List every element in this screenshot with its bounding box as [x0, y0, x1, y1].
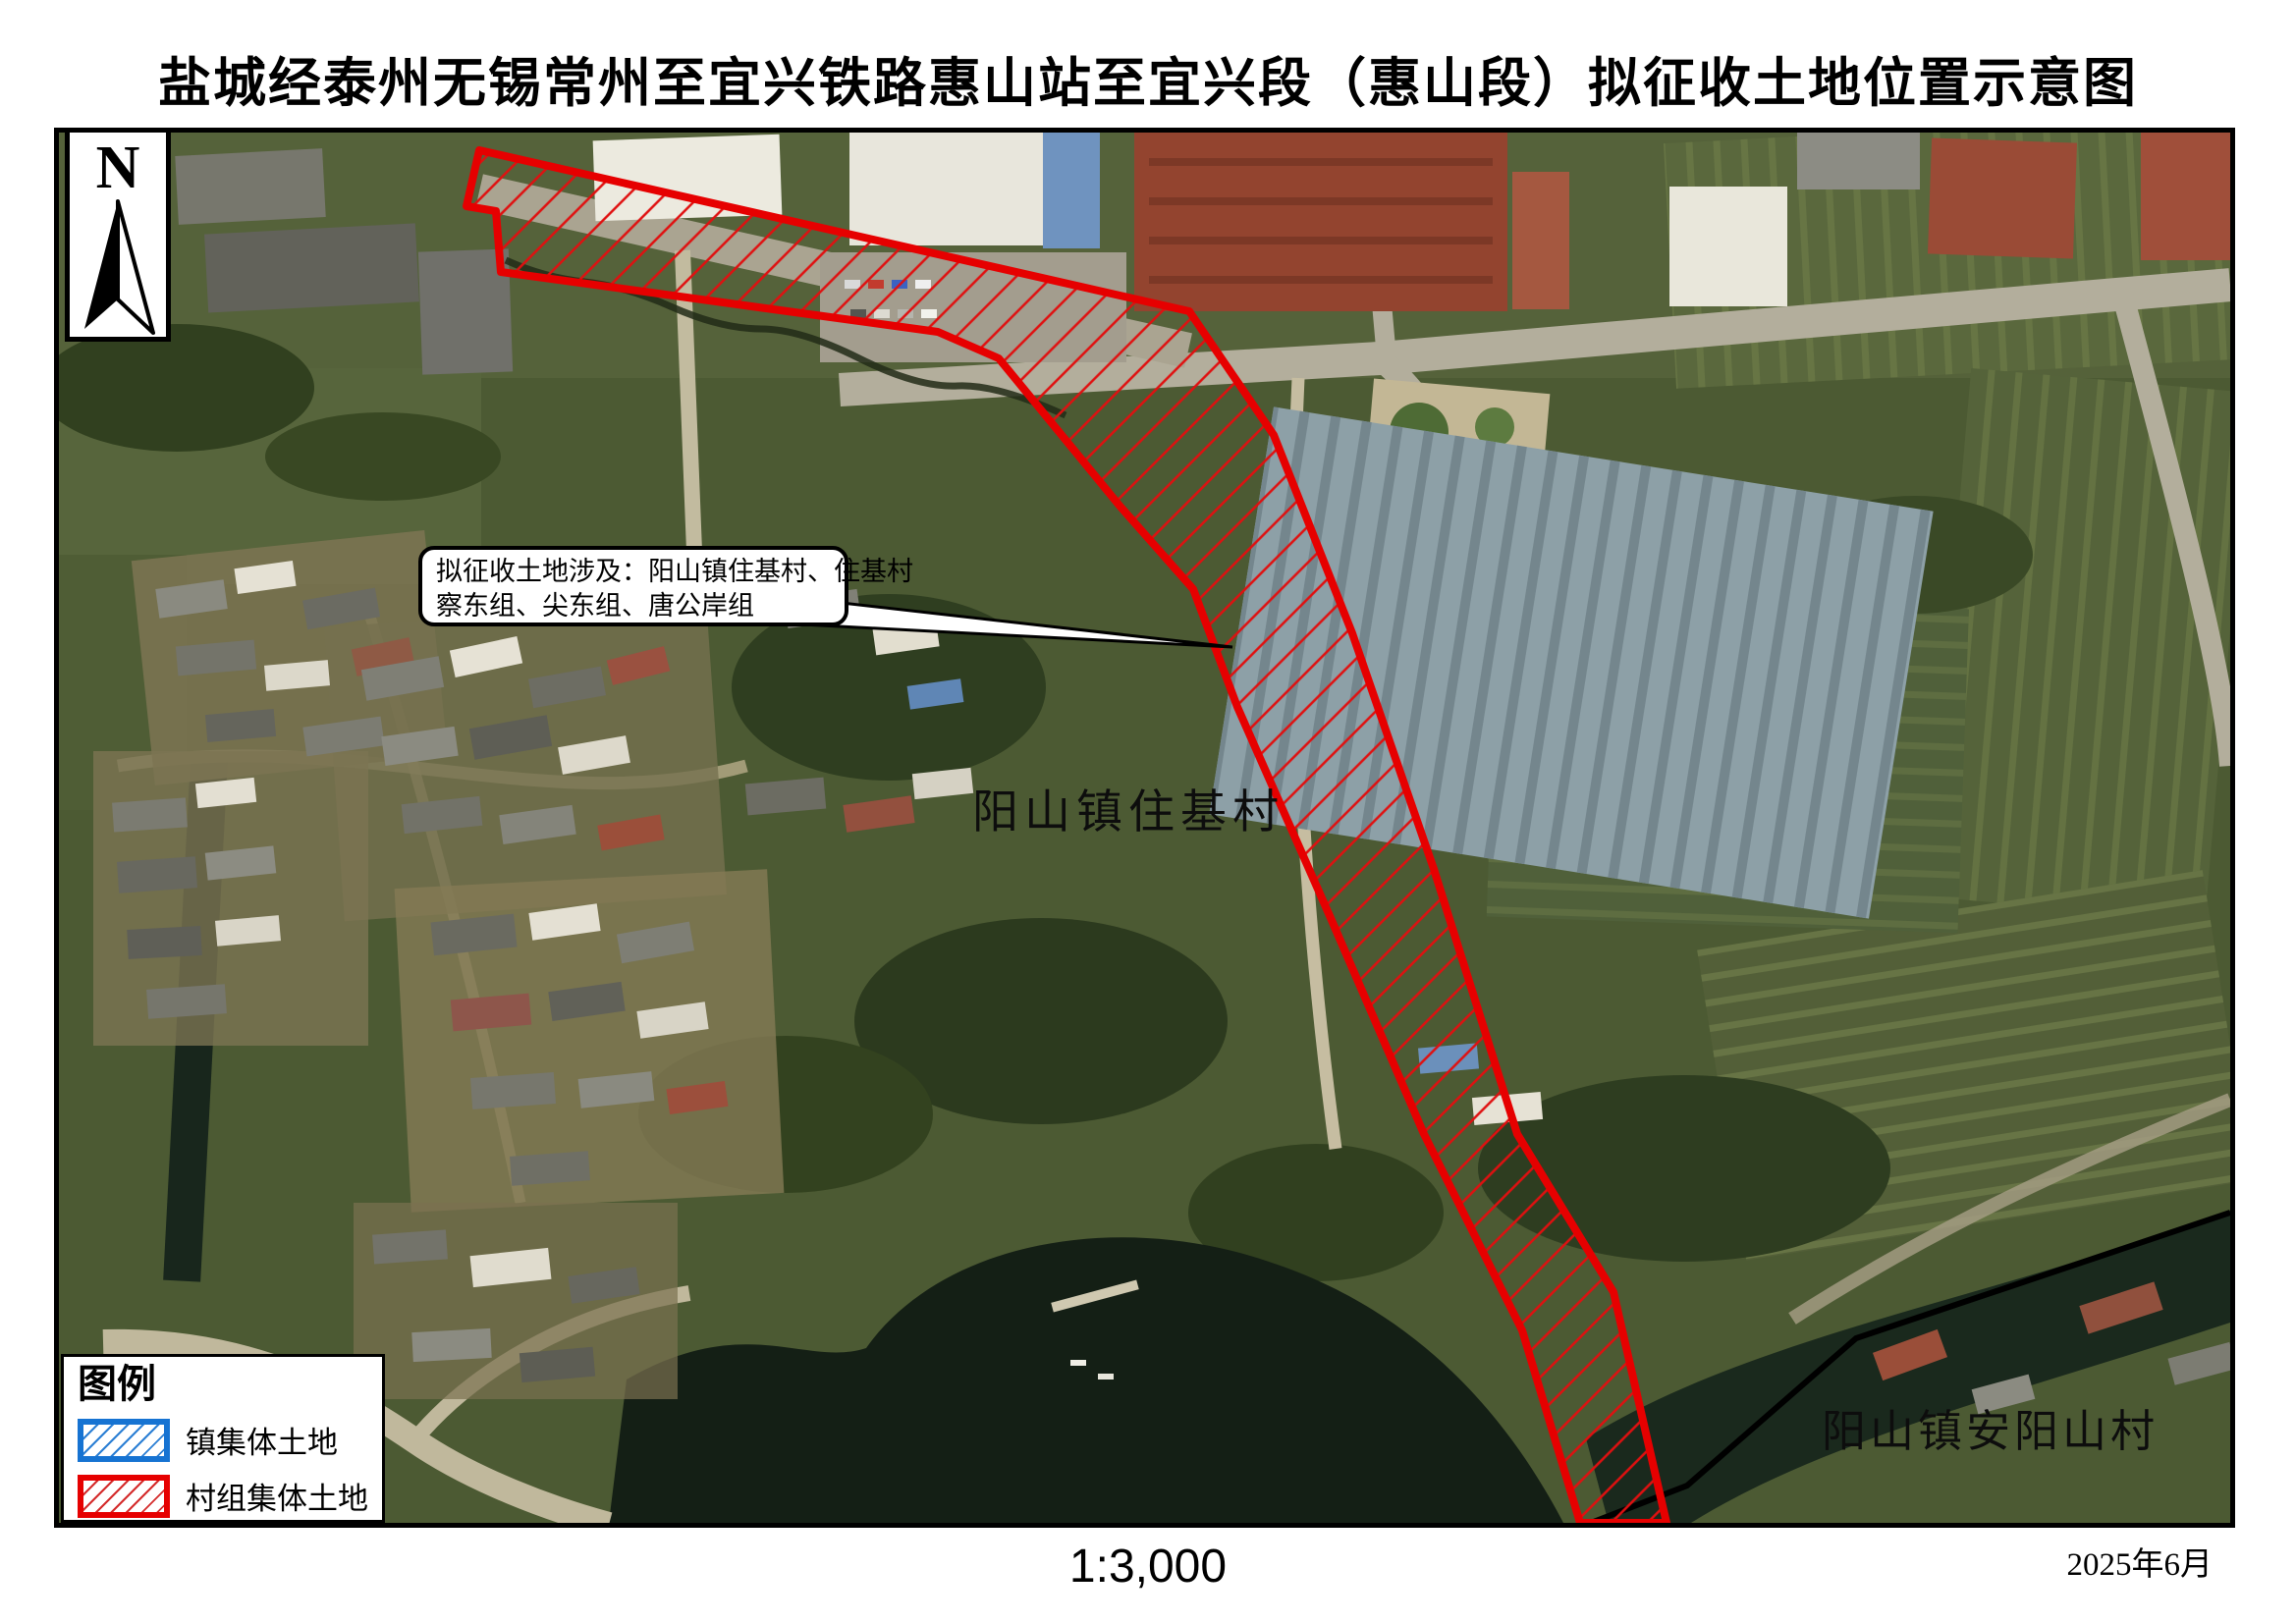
legend-label-town: 镇集体土地: [186, 1418, 338, 1462]
map-title: 盐城经泰州无锡常州至宜兴铁路惠山站至宜兴段（惠山段）拟征收土地位置示意图: [0, 39, 2296, 117]
map-scale: 1:3,000: [0, 1540, 2296, 1594]
legend-row-town: 镇集体土地: [78, 1418, 382, 1462]
legend-row-village: 村组集体土地: [78, 1474, 382, 1518]
north-arrow: N: [65, 128, 171, 342]
town-collective-swatch: [78, 1419, 170, 1462]
village-collective-swatch: [78, 1475, 170, 1518]
callout-text-line2: 察东组、尖东组、唐公岸组: [436, 591, 754, 621]
legend-label-village: 村组集体土地: [186, 1474, 368, 1518]
callout-text-line1: 拟征收土地涉及：阳山镇住基村、住基村: [436, 557, 913, 586]
label-village-south: 阳山镇安阳山村: [1822, 1407, 2159, 1456]
legend: 图例 镇集体土地 村组集体土地: [61, 1354, 385, 1523]
page: 盐城经泰州无锡常州至宜兴铁路惠山站至宜兴段（惠山段）拟征收土地位置示意图: [0, 0, 2296, 1623]
orchard-right: [1925, 368, 2230, 921]
north-arrow-icon: [71, 199, 165, 337]
north-label: N: [70, 136, 166, 199]
map-date: 2025年6月: [2067, 1538, 2214, 1585]
legend-title: 图例: [78, 1363, 382, 1406]
map-frame: 阳山镇住基村 阳山镇安阳山村 拟征收土地涉及：阳山镇住基村、住基村 察东组、尖东…: [54, 128, 2235, 1528]
satellite-map: 阳山镇住基村 阳山镇安阳山村 拟征收土地涉及：阳山镇住基村、住基村 察东组、尖东…: [59, 133, 2230, 1523]
label-village-main: 阳山镇住基村: [972, 787, 1285, 839]
